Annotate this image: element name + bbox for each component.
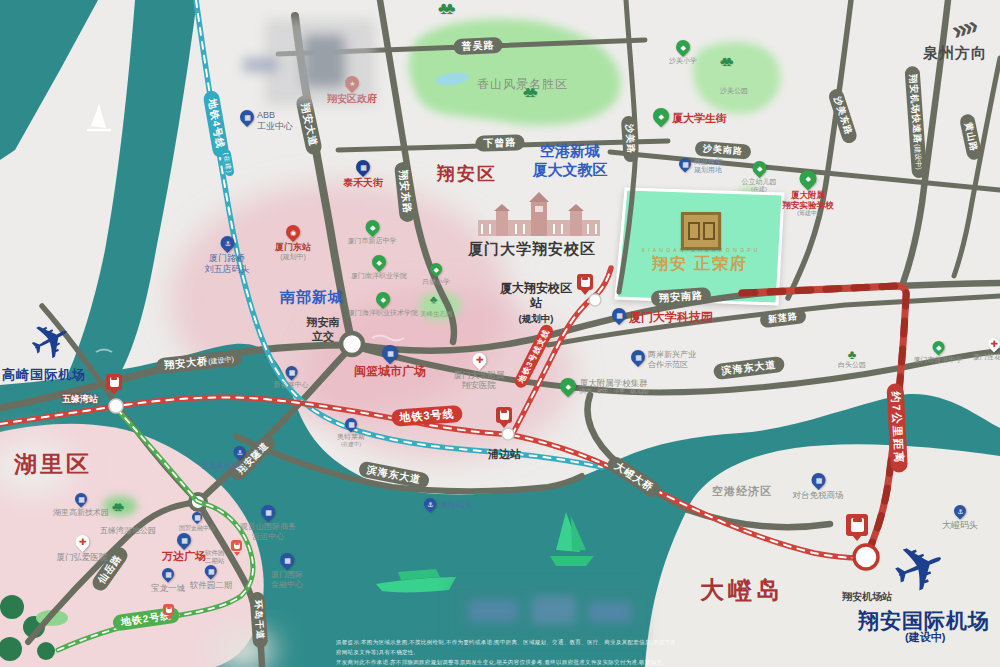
zone-label-nanbu: 南部新城: [280, 288, 344, 307]
poi-label-shamei-park: 沙美公园: [720, 87, 748, 96]
poi-ocean-college: ◆ 厦门海洋职业技术学院: [348, 292, 418, 317]
station-pin-wuyuanwan: [106, 374, 122, 390]
building-pin: ▦: [609, 305, 629, 325]
tree-icon: ♣: [848, 348, 857, 361]
poi-label-tech-park: 厦门大学科技园: [629, 310, 713, 324]
poi-taihe: ▦ 泰禾天街: [343, 160, 383, 189]
poi-label-xindian-school: 厦门市新店中学: [348, 237, 397, 245]
poi-expo: ▦ 新会展中心: [274, 366, 309, 389]
poi-label-school-cluster-note: (高中、初中、小学、幼儿园): [579, 388, 649, 395]
campus-label: 厦门大学翔安校区: [468, 240, 596, 259]
location-map: ♣♣ ♣♣ ♣♣ ♣♣ ♣ 翔安区 湖里区 大嶝岛 南部新城 空港新城厦大文教区…: [0, 0, 1000, 667]
poi-lianhe-school: ◆ 厦门市莲河中学: [914, 341, 963, 364]
poi-xiada-street: ◆ 厦大学生街: [653, 108, 727, 127]
building-pin: ▦: [628, 347, 648, 367]
poi-label-nanyang: 厦门南洋职业学院: [351, 272, 407, 280]
poi-affiliated-school: ◆ 厦大附属 翔安实验学校 (筹建中): [783, 170, 834, 218]
poi-label-affiliated-school: 厦大附属 翔安实验学校: [783, 190, 834, 210]
poi-label-lvtang: 吕塘小学: [422, 278, 450, 286]
disclaimer-line1: 温馨提示:本图为区域示意图,不按比例绘制,不作为要约或承诺;图中距离、区域规划、…: [336, 639, 676, 655]
poi-label-baolong: 宝龙一城: [151, 583, 185, 593]
poi-label-outlets-note: (在建中): [341, 441, 361, 448]
building-pin: ▦: [379, 342, 402, 365]
poi-label-minlan: 闽篮城市广场: [354, 364, 426, 378]
poi-tech-park: ▦ 厦门大学科技园: [612, 308, 713, 325]
station-pin-xiamen-east: ◉: [283, 222, 303, 242]
station-label-campus-note: (规划中): [519, 313, 554, 324]
poi-biz-land: ▦ 商业住宅 规划用地: [679, 158, 722, 175]
poi-label-duty-free: 对台免税商场: [793, 490, 844, 500]
poi-label-xiangan-hospital: 厦门大学附属 翔安医院: [454, 370, 505, 390]
poi-xindian-school: ◆ 厦门市新店中学: [348, 220, 397, 245]
poi-label-wutong: 五通客运码头: [202, 461, 247, 470]
poi-intl-finance: ▦ 厦门国际 金融中心: [271, 553, 303, 589]
hospital-cross-pin: ✚: [469, 350, 489, 370]
poi-label-xiada-street: 厦大学生街: [672, 112, 727, 125]
building-pin: ▦: [343, 416, 360, 433]
zone-label-konggang-economic: 空港经济区: [712, 485, 772, 499]
poi-label-kindergarten-note: (在建): [751, 186, 767, 193]
tree-icon: ♣♣: [438, 0, 450, 17]
poi-label-shamei-primary: 沙美小学: [669, 57, 697, 65]
poi-shamei-primary: ◆ 沙美小学: [669, 40, 697, 65]
poi-coop-zone: ▦ 两岸新兴产业 合作示范区: [631, 350, 696, 369]
poi-kindergarten: ◆ 公立幼儿园 (在建): [742, 161, 777, 194]
building-pin: ▦: [283, 364, 300, 381]
station-pin-campus: [577, 274, 593, 290]
region-label-dadeng: 大嶝岛: [700, 575, 784, 605]
poi-xiangan-hospital: ✚ 厦门大学附属 翔安医院: [454, 353, 505, 390]
poi-label-outlets: 奥特莱斯: [337, 433, 365, 441]
poi-minlan: ▦ 闽篮城市广场: [354, 345, 426, 378]
project-name: 翔安 正荣府: [650, 254, 750, 274]
poi-label-baitou: 白头公园: [838, 361, 866, 369]
station-label-airport: 翔安机场站: [842, 591, 892, 604]
station-label-xiamen-east: 厦门东站: [275, 242, 311, 253]
school-pin: ◆: [749, 158, 769, 178]
school-pin: ◆: [373, 289, 393, 309]
station-label-pubian: 浦边站: [488, 448, 521, 462]
graduation-cap-pin: ◆: [557, 375, 580, 398]
poi-label-wetland: 五缘湾湿地公园: [100, 526, 156, 536]
poi-liuwudian: ⚓ 厦门路桥 刘五店码头: [205, 236, 250, 275]
region-label-xiangan: 翔安区: [437, 163, 497, 186]
tree-icon: ♣♣: [112, 500, 119, 513]
disclaimer-text: 温馨提示:本图为区域示意图,不按比例绘制,不作为要约或承诺;图中距离、区域规划、…: [336, 638, 681, 667]
poi-lianhua-hospital: ✚ 厦门莲花医院: [973, 338, 1000, 361]
anchor-pin: ⚓: [422, 496, 439, 513]
building-pin: ▦: [808, 470, 828, 490]
poi-baitou: ♣ 白头公园: [838, 348, 866, 369]
building-pin: ▦: [353, 157, 373, 177]
school-pin: ◆: [673, 37, 693, 57]
poi-label-school-cluster: 厦大附属学校集群: [579, 378, 649, 388]
station-pin-airport: [846, 514, 868, 536]
disclaimer-line2: 开发商对此不作承诺,亦不排除因政府规划调整等原因发生变化,相关内容仅供参考,最终…: [336, 659, 668, 665]
graduation-cap-pin: ◆: [650, 105, 673, 128]
poi-label-dadeng-wharf: 大嶝码头: [942, 520, 978, 531]
station-label-wuyuanwan: 五缘湾站: [62, 394, 98, 405]
blurred-watermark: [265, 20, 375, 105]
building-pin: ▦: [237, 107, 257, 127]
anchor-pin: ⚓: [217, 233, 237, 253]
road-label-airport-express-note: (建设中): [914, 144, 923, 170]
station-label-campus-text: 厦大翔安校区站: [500, 281, 572, 310]
poi-label-wanda: 万达广场: [162, 550, 206, 563]
station-label-xiamen-east-note: (规划中): [280, 253, 306, 261]
poi-label-guanyinshan: 观音山国际商务 营运中心: [240, 522, 296, 541]
direction-label-quanzhou: 泉州方向: [923, 44, 987, 63]
poi-nanyang: ◆ 厦门南洋职业学院: [351, 255, 407, 280]
road-label-shamei: 沙美路: [621, 116, 639, 163]
zone-label-konggang-line1: 空港新城: [540, 142, 600, 159]
station-pin-pubian: [496, 407, 512, 423]
building-pin: ▦: [677, 156, 694, 173]
poi-label-hongai: 厦门弘爱医院: [57, 552, 108, 562]
poi-lvtang: ◆ 吕塘小学: [422, 263, 450, 286]
tree-icon: ♣♣: [720, 54, 728, 68]
poi-label-software-park: 软件园二期: [190, 580, 233, 590]
poi-outlets: ▦ 奥特莱斯 (在建中): [337, 418, 365, 448]
poi-software-park: ▦ 软件园二期: [190, 565, 233, 590]
hospital-cross-pin: ✚: [986, 336, 1000, 353]
tree-icon: ♣: [430, 294, 432, 305]
poi-label-intl-finance: 厦门国际 金融中心: [271, 570, 303, 589]
school-pin: ◆: [362, 217, 382, 237]
poi-label-meifeng: 美峰生态园: [420, 310, 453, 318]
school-pin: ◆: [428, 261, 445, 278]
park-label-xiangshan: 香山风景名胜区: [477, 77, 568, 92]
school-pin: ◆: [369, 252, 389, 272]
anchor-pin: ⚓: [231, 444, 248, 461]
station-poi-xiamen-east: ◉ 厦门东站 (规划中): [275, 225, 311, 261]
poi-abb: ▦ ABB 工业中心: [240, 110, 293, 132]
poi-label-lianhe-school: 厦门市莲河中学: [914, 356, 963, 364]
poi-hi-tech: ▦ 湖里高新技术园: [53, 493, 109, 518]
building-pin: ▦: [160, 566, 177, 583]
poi-dadeng-wharf: ⚓ 大嶝码头: [942, 505, 978, 531]
poi-label-affiliated-school-note: (筹建中): [797, 210, 819, 217]
transit-pin: [163, 604, 174, 615]
road-label-xiangan-bridge-text: 翔安大桥: [164, 355, 209, 371]
airport-label-xiangan-note: (建设中): [905, 631, 945, 645]
poi-label-haixiang: 海翔码头: [439, 500, 473, 510]
region-label-huli: 湖里区: [14, 450, 92, 479]
poi-baolong: ▦ 宝龙一城: [151, 568, 185, 593]
poi-label-hi-tech: 湖里高新技术园: [53, 508, 109, 518]
poi-label-abb: ABB 工业中心: [257, 110, 293, 132]
poi-label-coop-zone: 两岸新兴产业 合作示范区: [648, 350, 696, 369]
road-label-xiangan-bridge-note: (建设中): [208, 355, 234, 365]
road-label-airport-express-text: 翔安机场快速路: [908, 74, 923, 145]
interchange-label: 翔安南 立交: [300, 316, 346, 344]
project-logo: [681, 212, 721, 250]
hospital-cross-pin: ✚: [72, 532, 92, 552]
road-label-xiacen: 下曾路: [475, 134, 525, 152]
poi-label-ocean-college: 厦门海洋职业技术学院: [348, 309, 418, 317]
poi-guanyinshan: ▦ 观音山国际商务 营运中心: [240, 505, 296, 541]
poi-hongai: ✚ 厦门弘爱医院: [57, 535, 108, 562]
poi-wanda: ▦ 万达广场: [162, 533, 206, 563]
station-label-software-park: 软件园 二期站: [205, 549, 225, 565]
poi-label-lianhua-hospital: 厦门莲花医院: [973, 353, 1000, 361]
building-pin: ▦: [203, 563, 220, 580]
station-pin-software-park: [231, 540, 242, 551]
poi-label-expo: 新会展中心: [274, 381, 309, 389]
zone-label-konggang: 空港新城厦大文教区: [527, 142, 613, 180]
graduation-cap-pin: ◆: [796, 166, 820, 190]
poi-label-liuwudian: 厦门路桥 刘五店码头: [205, 253, 250, 275]
building-pin: ▦: [258, 502, 278, 522]
zone-label-konggang-line2: 厦大文教区: [533, 161, 608, 178]
blurred-watermark: [448, 582, 648, 642]
building-pin: ▦: [174, 530, 194, 550]
poi-guomao: ▦ 国贸金融中心: [179, 512, 215, 532]
poi-label-kindergarten: 公立幼儿园: [742, 178, 777, 186]
poi-label-taihe: 泰禾天街: [343, 177, 383, 189]
map-base: [0, 0, 1000, 667]
poi-haixiang: ⚓ 海翔码头: [424, 498, 473, 513]
building-pin: ▦: [190, 510, 204, 524]
poi-wutong: ⚓ 五通客运码头: [232, 446, 247, 470]
building-pin: ▦: [73, 491, 90, 508]
road-label-puwu: 普吴路: [453, 37, 503, 56]
poi-label-guomao: 国贸金融中心: [179, 525, 215, 532]
school-pin: ◆: [930, 339, 947, 356]
poi-school-cluster: ◆ 厦大附属学校集群 (高中、初中、小学、幼儿园): [560, 378, 649, 397]
station-label-campus: 厦大翔安校区站(规划中): [495, 281, 577, 326]
anchor-pin: ⚓: [952, 503, 969, 520]
poi-duty-free: ▦ 对台免税商场: [793, 473, 844, 500]
poi-label-biz-land: 商业住宅 规划用地: [694, 158, 722, 175]
building-pin: ▦: [277, 550, 297, 570]
